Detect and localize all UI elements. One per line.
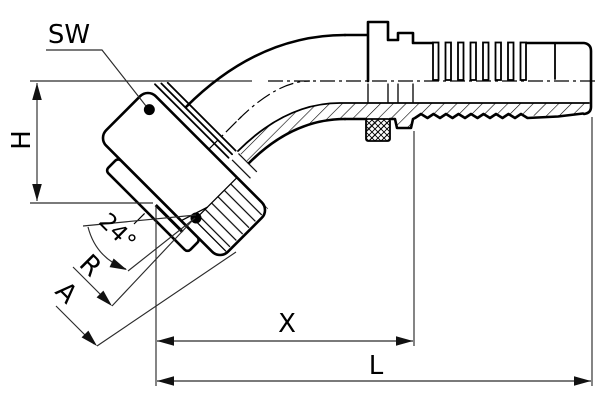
sw-label: SW: [48, 20, 90, 50]
nipple-serrations: [433, 43, 526, 81]
hose-stop-collars: [345, 22, 433, 81]
cone-angle-arrow: [110, 258, 129, 274]
seal-element: [366, 119, 390, 141]
dimensions: H SW 24° R A X L: [7, 20, 592, 386]
cone-angle-label: 24°: [93, 208, 140, 255]
h-arrow-up: [32, 83, 42, 100]
l-arrow-right: [574, 376, 591, 386]
sw-leader-line: [46, 50, 146, 106]
l-arrow-left: [157, 376, 174, 386]
x-dimension-label: X: [278, 309, 296, 339]
a-arrow: [82, 331, 101, 350]
l-dimension-label: L: [369, 351, 384, 381]
a-label: A: [49, 276, 83, 310]
h-dimension-label: H: [7, 130, 37, 150]
h-arrow-down: [32, 184, 42, 201]
r-leader-dot: [191, 213, 202, 224]
x-arrow-right: [396, 336, 413, 346]
fitting-drawing-canvas: H SW 24° R A X L: [0, 0, 600, 400]
x-arrow-left: [157, 336, 174, 346]
technical-drawing-page: H SW 24° R A X L: [0, 0, 600, 400]
